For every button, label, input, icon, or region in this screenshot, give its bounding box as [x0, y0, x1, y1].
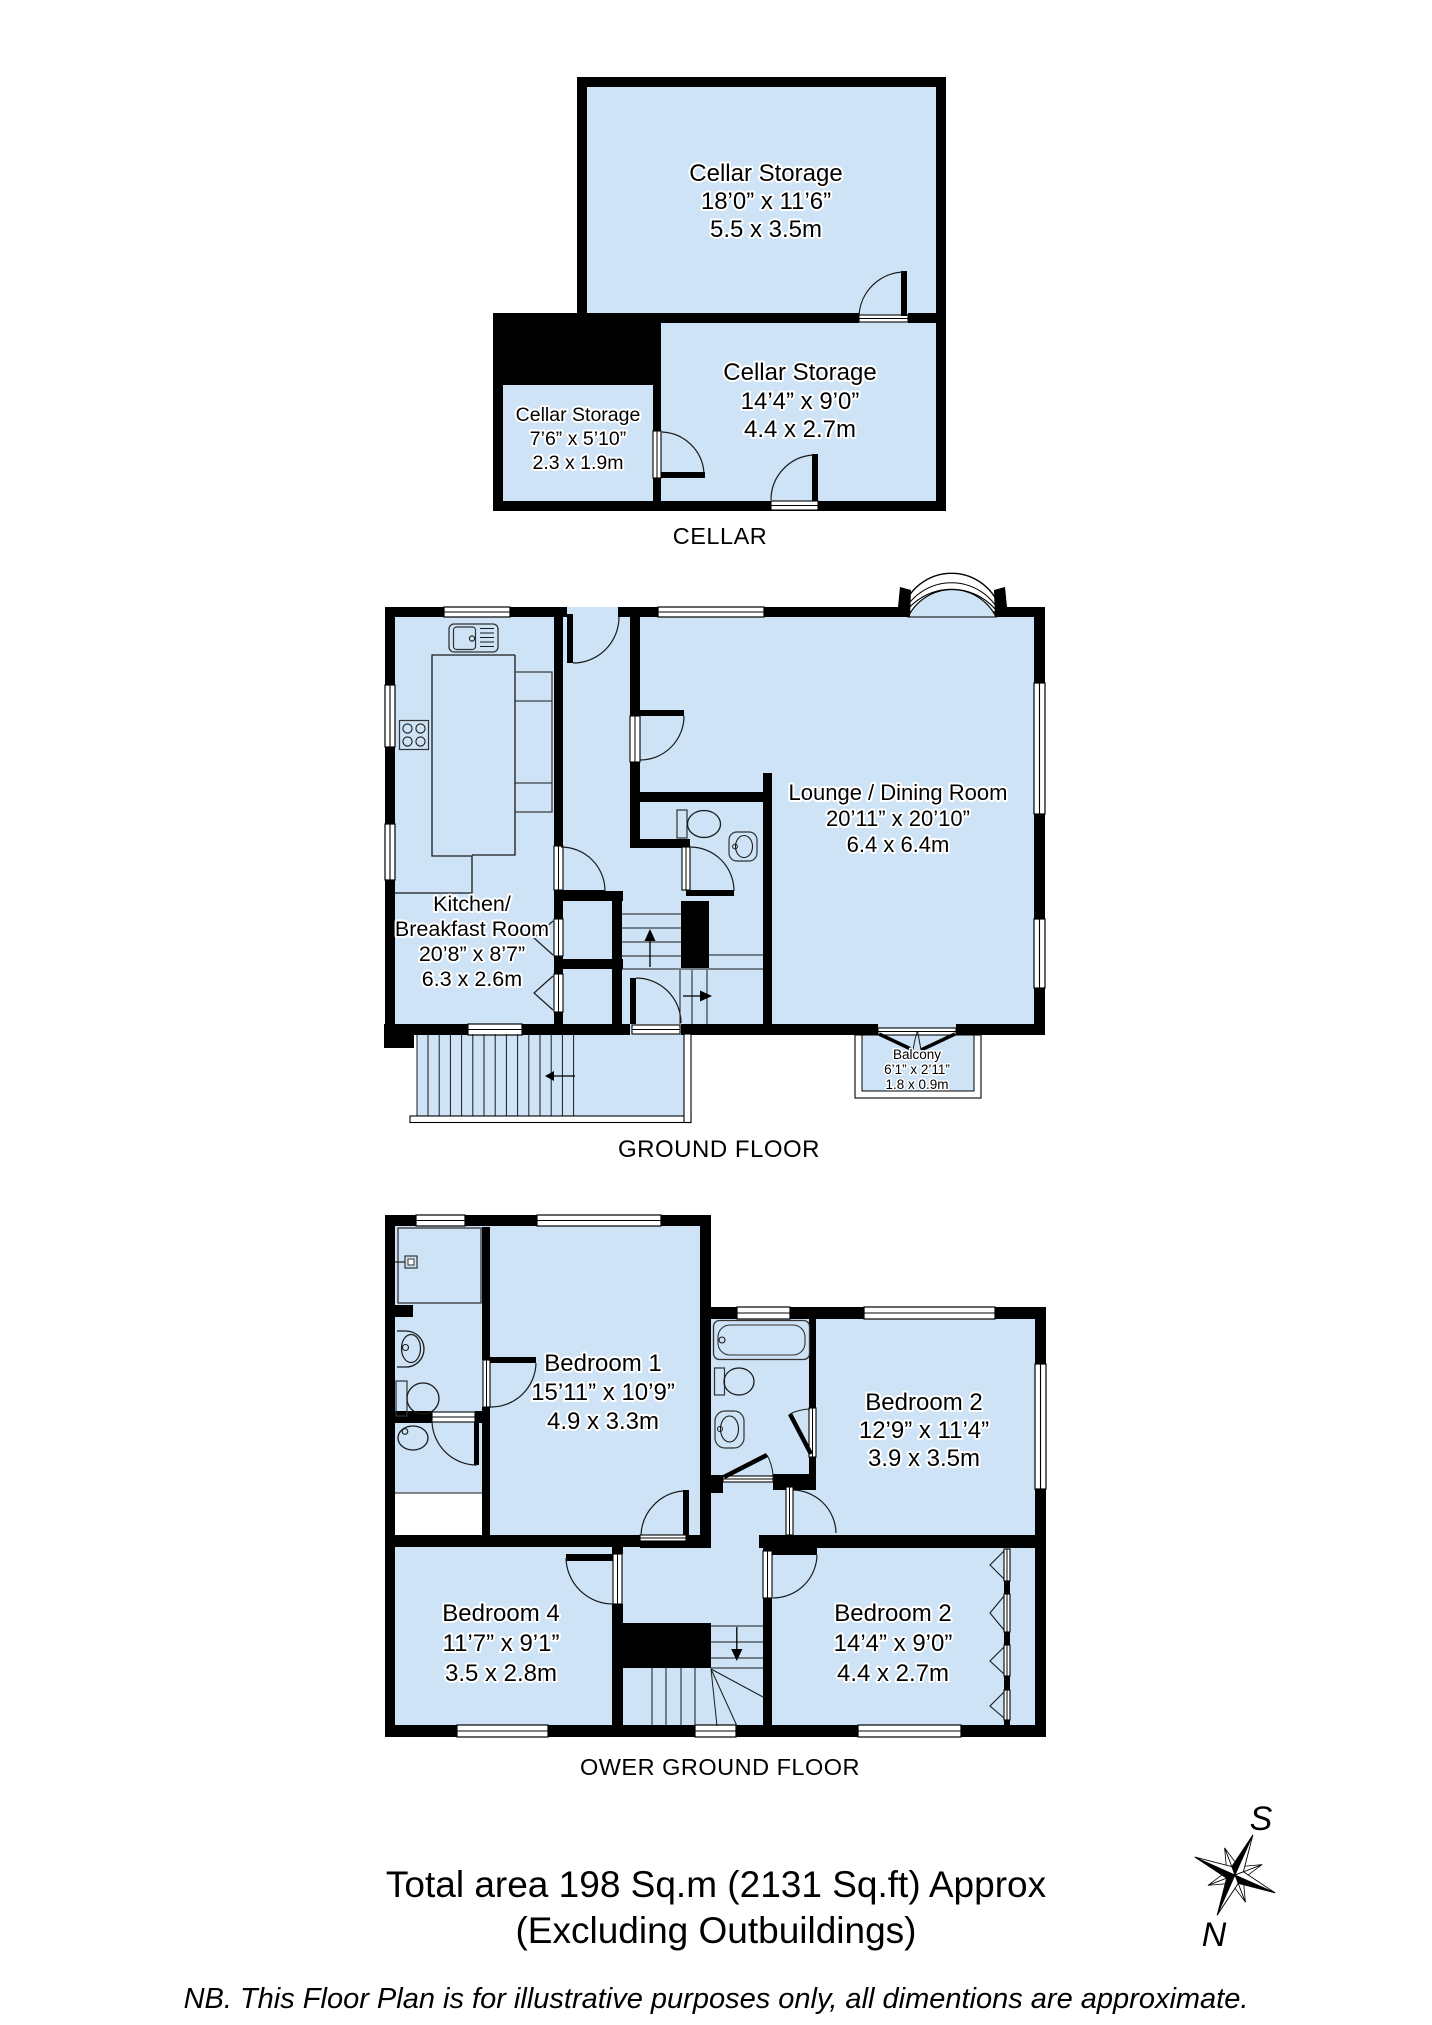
svg-text:14’4” x 9’0”: 14’4” x 9’0”	[834, 1630, 953, 1657]
svg-text:Bedroom 1: Bedroom 1	[544, 1350, 661, 1377]
svg-text:Balcony: Balcony	[893, 1047, 941, 1062]
svg-text:Bedroom 2: Bedroom 2	[834, 1600, 951, 1627]
svg-text:Total area 198 Sq.m (2131 Sq.f: Total area 198 Sq.m (2131 Sq.ft) Approx	[386, 1864, 1047, 1905]
svg-text:Kitchen/: Kitchen/	[433, 892, 511, 916]
svg-text:1.8 x 0.9m: 1.8 x 0.9m	[885, 1077, 948, 1092]
svg-text:3.9 x 3.5m: 3.9 x 3.5m	[868, 1445, 980, 1472]
svg-text:Breakfast Room: Breakfast Room	[395, 917, 549, 941]
svg-text:7’6” x 5’10”: 7’6” x 5’10”	[530, 428, 626, 450]
svg-text:Bedroom 4: Bedroom 4	[442, 1600, 559, 1627]
svg-text:(Excluding Outbuildings): (Excluding Outbuildings)	[515, 1910, 916, 1951]
svg-text:OWER GROUND FLOOR: OWER GROUND FLOOR	[580, 1754, 860, 1780]
svg-text:5.5 x 3.5m: 5.5 x 3.5m	[710, 216, 822, 243]
svg-text:4.4 x 2.7m: 4.4 x 2.7m	[744, 416, 856, 443]
svg-text:Cellar Storage: Cellar Storage	[689, 160, 842, 187]
svg-text:18’0” x 11’6”: 18’0” x 11’6”	[701, 188, 831, 215]
svg-text:S: S	[1250, 1800, 1273, 1838]
svg-text:14’4” x 9’0”: 14’4” x 9’0”	[741, 388, 860, 415]
svg-text:4.4 x 2.7m: 4.4 x 2.7m	[837, 1660, 949, 1687]
svg-text:NB. This Floor Plan is for ill: NB. This Floor Plan is for illustrative …	[184, 1983, 1249, 2015]
svg-text:20’8” x 8’7”: 20’8” x 8’7”	[419, 942, 525, 966]
svg-text:6’1” x 2’11”: 6’1” x 2’11”	[884, 1062, 950, 1077]
svg-text:12’9” x 11’4”: 12’9” x 11’4”	[859, 1417, 989, 1444]
svg-text:11’7” x 9’1”: 11’7” x 9’1”	[443, 1630, 560, 1657]
svg-text:Cellar Storage: Cellar Storage	[516, 404, 641, 426]
svg-text:GROUND FLOOR: GROUND FLOOR	[618, 1136, 820, 1163]
svg-text:CELLAR: CELLAR	[673, 523, 767, 549]
svg-text:Cellar Storage: Cellar Storage	[723, 359, 876, 386]
svg-text:4.9 x 3.3m: 4.9 x 3.3m	[547, 1408, 659, 1435]
svg-text:15’11” x 10’9”: 15’11” x 10’9”	[531, 1379, 675, 1406]
svg-text:Bedroom 2: Bedroom 2	[865, 1389, 982, 1416]
svg-text:6.4 x 6.4m: 6.4 x 6.4m	[847, 832, 950, 857]
svg-text:3.5 x 2.8m: 3.5 x 2.8m	[445, 1660, 557, 1687]
svg-text:2.3 x 1.9m: 2.3 x 1.9m	[532, 452, 623, 474]
svg-text:20’11” x 20’10”: 20’11” x 20’10”	[826, 806, 970, 831]
svg-text:N: N	[1202, 1916, 1227, 1954]
svg-text:6.3 x 2.6m: 6.3 x 2.6m	[422, 967, 522, 991]
svg-text:Lounge / Dining Room: Lounge / Dining Room	[789, 780, 1008, 805]
